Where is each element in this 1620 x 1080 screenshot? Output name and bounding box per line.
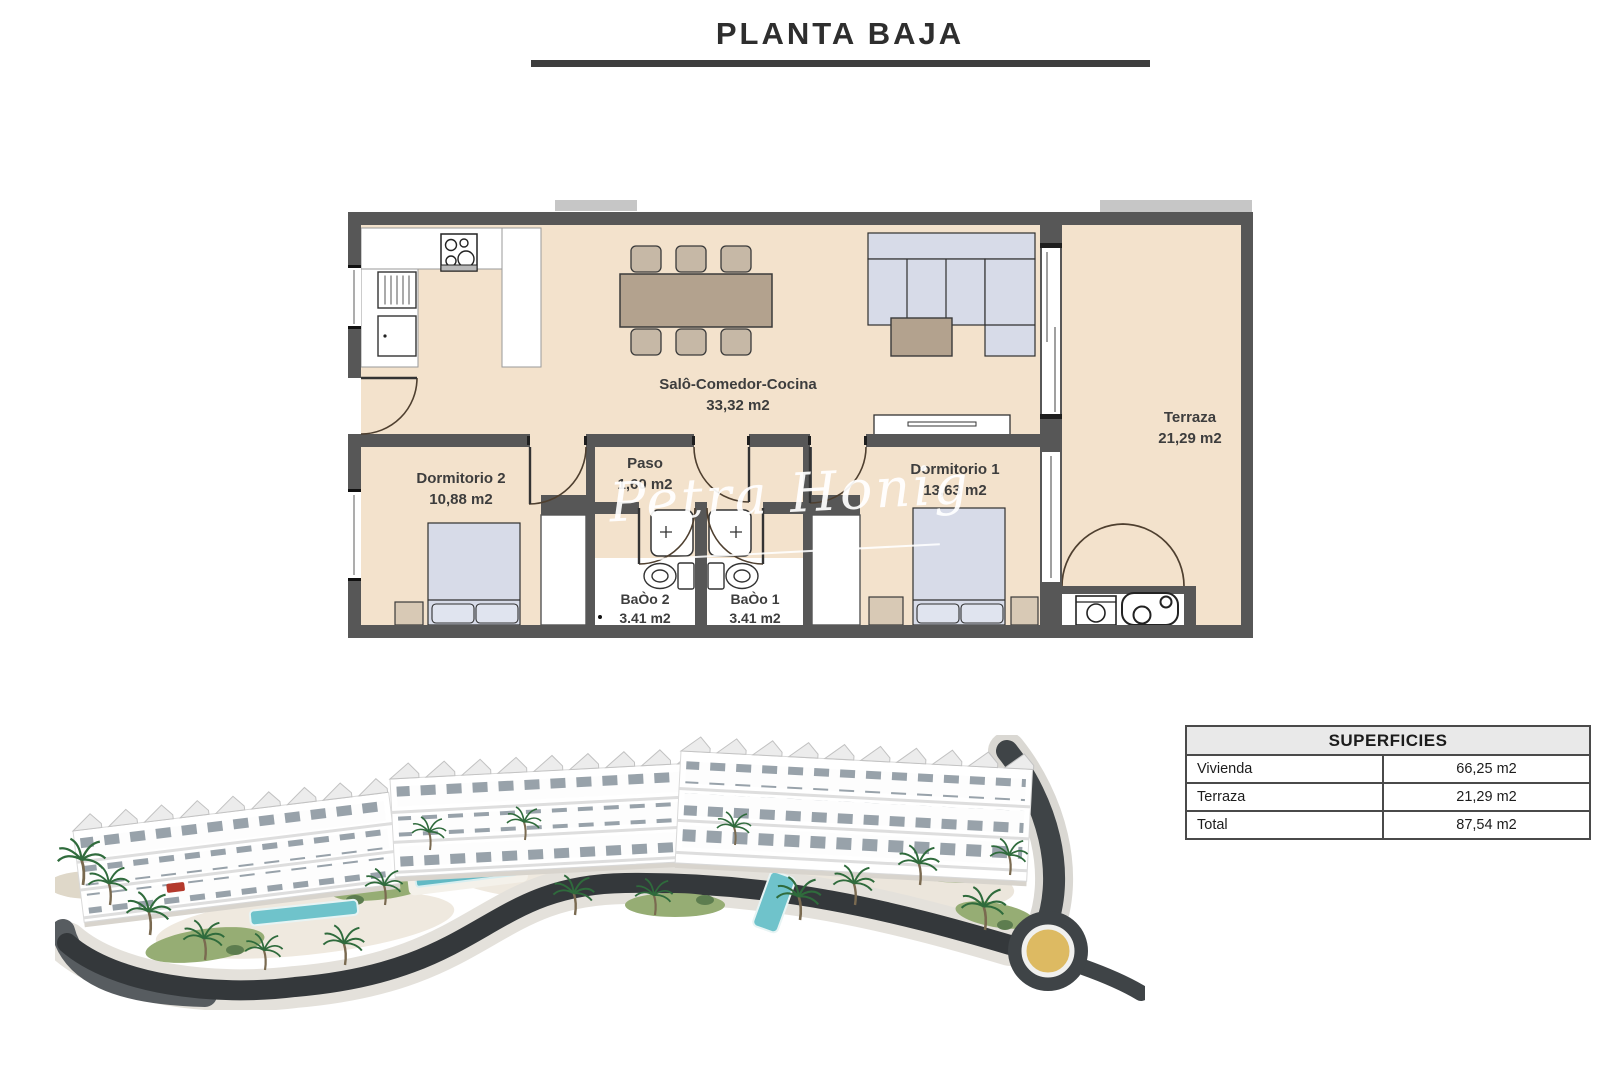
table-row: Terraza 21,29 m2 [1187, 784, 1589, 812]
room-label-terraza: Terraza 21,29 m2 [1158, 407, 1221, 449]
exterior-wall-strip [555, 200, 637, 211]
dining-set [620, 246, 772, 355]
row-value: 21,29 m2 [1384, 784, 1589, 810]
row-label: Vivienda [1187, 756, 1384, 782]
bed-dormitorio1 [913, 508, 1005, 625]
table-row: Vivienda 66,25 m2 [1187, 756, 1589, 784]
row-value: 87,54 m2 [1384, 812, 1589, 838]
window [348, 489, 361, 581]
washing-machine-icon [1076, 596, 1116, 625]
brochure-page: PLANTA BAJA [0, 0, 1620, 1080]
room-label-dormitorio2: Dormitorio 2 10,88 m2 [416, 468, 505, 510]
nightstand [869, 597, 903, 625]
row-label: Total [1187, 812, 1384, 838]
fridge-icon [378, 316, 416, 356]
nightstand [1011, 597, 1038, 625]
tv-stand [874, 415, 1010, 435]
exterior-wall-strip [1100, 200, 1252, 212]
roundabout [1008, 911, 1088, 991]
floor-plan: Salô-Comedor-Cocina 33,32 m2 Terraza 21,… [348, 212, 1253, 638]
boiler-icon [1122, 593, 1178, 625]
window [1042, 452, 1060, 582]
stove-icon [441, 234, 477, 271]
window [348, 265, 361, 329]
surfaces-table: SUPERFICIES Vivienda 66,25 m2 Terraza 21… [1185, 725, 1591, 840]
page-title: PLANTA BAJA [530, 16, 1150, 52]
room-label-paso: Paso 1,60 m2 [617, 453, 672, 495]
table-row: Total 87,54 m2 [1187, 812, 1589, 838]
title-underline [531, 60, 1150, 67]
row-label: Terraza [1187, 784, 1384, 810]
row-value: 66,25 m2 [1384, 756, 1589, 782]
dining-table [620, 274, 772, 327]
sliding-door [1040, 243, 1062, 419]
building-render [55, 735, 1145, 1010]
bed-dormitorio2 [428, 523, 520, 625]
room-label-salon: Salô-Comedor-Cocina 33,32 m2 [659, 374, 817, 416]
wardrobe-dormitorio1 [812, 495, 860, 625]
kitchen-appliance-icon [378, 272, 416, 308]
nightstand [395, 602, 423, 625]
floor-plan-drawing [348, 212, 1253, 638]
wardrobe-dormitorio2 [541, 495, 586, 625]
room-label-bano2: BaÒo 2 3.41 m2 [619, 590, 670, 628]
coffee-table [891, 318, 952, 356]
room-label-dormitorio1: Dormitorio 1 13,63 m2 [910, 459, 999, 501]
surfaces-table-header: SUPERFICIES [1187, 727, 1589, 756]
room-label-bano1: BaÒo 1 3.41 m2 [729, 590, 780, 628]
building-right [675, 736, 1034, 886]
